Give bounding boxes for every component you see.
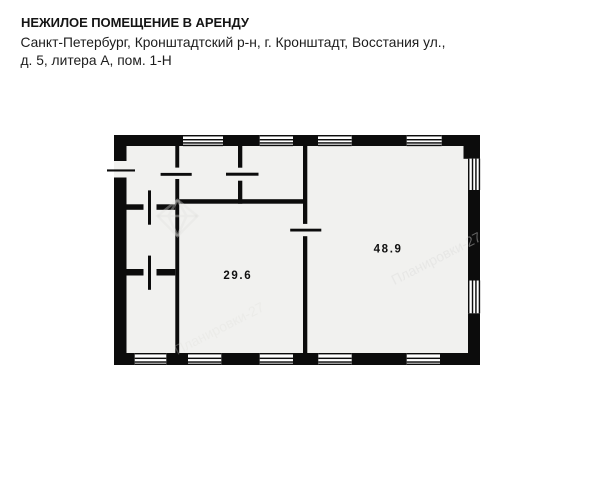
svg-text:48.9: 48.9 [374, 244, 403, 256]
svg-text:29.6: 29.6 [223, 270, 252, 282]
